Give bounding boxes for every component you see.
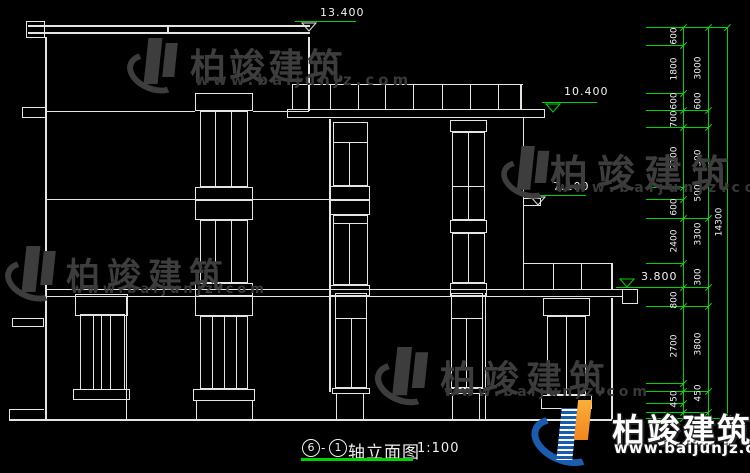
cad-elevation-canvas: 6001800600700210060024008002700450300060… bbox=[0, 0, 750, 473]
wall-line bbox=[46, 199, 195, 200]
wall-line bbox=[46, 111, 195, 112]
wall-line bbox=[9, 409, 10, 420]
wall-line bbox=[523, 263, 524, 289]
window-frame bbox=[75, 294, 128, 316]
window-frame bbox=[452, 132, 485, 220]
wall-line bbox=[581, 263, 582, 289]
window-frame bbox=[200, 316, 248, 389]
dimension-value: 700 bbox=[671, 110, 680, 127]
wall-line bbox=[498, 84, 499, 110]
wall-line bbox=[9, 409, 44, 410]
wall-line bbox=[442, 84, 443, 110]
window-frame bbox=[330, 186, 370, 200]
dimension-value: 1800 bbox=[671, 58, 680, 81]
window-frame bbox=[195, 200, 253, 220]
dimension-value: 300 bbox=[695, 268, 704, 285]
drawing-scale: 1:100 bbox=[417, 441, 459, 456]
wall-line bbox=[470, 84, 471, 110]
dimension-value: 3300 bbox=[695, 223, 704, 246]
elevation-value: 13.400 bbox=[320, 6, 365, 19]
wall-line bbox=[167, 25, 169, 34]
dimension-line bbox=[727, 27, 728, 420]
window-frame bbox=[622, 289, 638, 304]
window-frame bbox=[450, 220, 487, 233]
extension-line bbox=[646, 218, 709, 219]
dimension-line bbox=[708, 27, 709, 420]
wall-line bbox=[196, 401, 197, 419]
wall-line bbox=[28, 32, 310, 34]
title-underline bbox=[301, 458, 413, 461]
dimension-value: 600 bbox=[695, 92, 704, 109]
window-frame bbox=[12, 318, 44, 327]
dimension-line bbox=[683, 27, 684, 420]
window-frame bbox=[200, 111, 248, 187]
window-frame bbox=[335, 293, 367, 388]
window-frame bbox=[333, 215, 368, 285]
extension-line bbox=[646, 45, 684, 46]
elevation-triangle-icon bbox=[619, 278, 635, 288]
window-frame bbox=[80, 314, 125, 390]
wall-line bbox=[611, 263, 613, 289]
wall-line bbox=[329, 119, 331, 392]
dimension-value: 14300 bbox=[716, 208, 725, 237]
window-frame bbox=[22, 107, 46, 118]
window-frame bbox=[195, 93, 253, 111]
window-frame bbox=[452, 233, 485, 283]
elevation-value: 3.800 bbox=[641, 270, 678, 283]
window-frame bbox=[333, 122, 368, 186]
extension-line bbox=[646, 263, 684, 264]
dimension-value: 3000 bbox=[695, 57, 704, 80]
wall-line bbox=[28, 25, 310, 27]
watermark-url-text: www.baijunjz.com bbox=[556, 180, 750, 196]
window-frame bbox=[330, 200, 370, 215]
brand-logo: 柏竣建筑 www.baijunjz.com bbox=[528, 398, 748, 468]
window-frame bbox=[332, 388, 370, 394]
watermark-url-text: www.baijunjz.com bbox=[71, 282, 268, 297]
dimension-value: 2700 bbox=[671, 335, 680, 358]
dimension-value: 600 bbox=[671, 198, 680, 215]
axis-dash: - bbox=[321, 441, 325, 455]
extension-line bbox=[646, 383, 684, 384]
elevation-triangle-icon bbox=[545, 103, 561, 113]
wall-line bbox=[252, 401, 253, 419]
window-frame bbox=[73, 389, 130, 400]
dimension-value: 3800 bbox=[695, 333, 704, 356]
wall-line bbox=[336, 394, 337, 419]
elevation-triangle-icon bbox=[301, 22, 317, 32]
window-frame bbox=[195, 296, 253, 316]
wall-line bbox=[553, 263, 554, 289]
dimension-value: 600 bbox=[671, 27, 680, 44]
brand-url: www.baijunjz.com bbox=[614, 439, 750, 457]
wall-line bbox=[9, 419, 613, 421]
watermark-url-text: www.baijunjz.com bbox=[195, 71, 412, 89]
window-frame bbox=[195, 187, 253, 200]
window-frame bbox=[193, 389, 255, 401]
axis-bubble-end: 1 bbox=[329, 439, 347, 457]
wall-line bbox=[363, 394, 364, 419]
extension-line bbox=[646, 27, 728, 28]
dimension-value: 2400 bbox=[671, 230, 680, 253]
window-frame bbox=[287, 109, 545, 118]
wall-line bbox=[45, 37, 47, 420]
window-frame bbox=[543, 298, 590, 316]
wall-line bbox=[413, 84, 414, 110]
window-frame bbox=[450, 120, 487, 132]
wall-line bbox=[523, 263, 613, 264]
window-frame bbox=[26, 21, 45, 38]
wall-line bbox=[253, 199, 330, 200]
dimension-value: 800 bbox=[671, 291, 680, 308]
elevation-value: 10.400 bbox=[564, 85, 609, 98]
dimension-value: 600 bbox=[671, 92, 680, 109]
axis-bubble-start: 6 bbox=[302, 439, 320, 457]
wall-line bbox=[520, 84, 522, 110]
